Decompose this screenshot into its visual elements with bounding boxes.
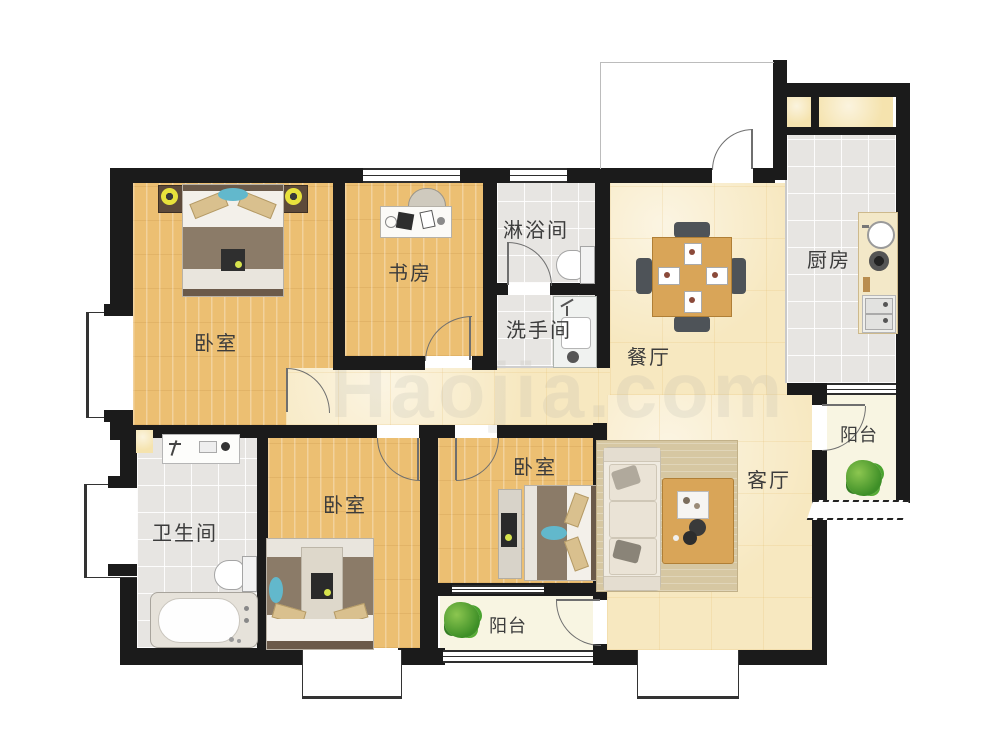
faucet-icon bbox=[862, 225, 869, 228]
floor-plan: Haojia.com bbox=[0, 0, 1000, 750]
mug-icon bbox=[385, 216, 397, 228]
wall-segment bbox=[472, 356, 497, 370]
bed-cushion bbox=[218, 188, 248, 201]
tray-cup bbox=[694, 503, 700, 509]
wall-segment bbox=[263, 425, 377, 438]
room-label-bedroom-2: 卧室 bbox=[323, 489, 367, 518]
entry-porch-line bbox=[600, 62, 601, 169]
window-study-top bbox=[363, 168, 460, 183]
kitchen-bay-ledge bbox=[787, 97, 811, 127]
deco-dot bbox=[673, 535, 679, 541]
bed-cushion bbox=[269, 577, 283, 603]
wall-segment bbox=[398, 648, 445, 665]
plate-dot bbox=[689, 297, 695, 303]
soap-icon bbox=[237, 639, 241, 643]
wall-segment bbox=[567, 168, 712, 183]
room-label-balcony-right: 阳台 bbox=[840, 421, 878, 447]
room-label-balcony-bottom: 阳台 bbox=[489, 612, 527, 638]
wall-segment bbox=[120, 568, 137, 665]
room-label-study: 书房 bbox=[388, 257, 432, 286]
plate-dot bbox=[712, 272, 718, 278]
wall-segment bbox=[753, 168, 775, 183]
book-icon bbox=[419, 210, 435, 229]
plate-dot bbox=[689, 249, 695, 255]
tap-icon bbox=[244, 606, 249, 611]
bed-tray-dot bbox=[235, 261, 242, 268]
bedroom-2-door-leaf bbox=[417, 438, 419, 480]
drain-dot bbox=[883, 318, 888, 323]
wall-segment bbox=[483, 183, 497, 370]
kitchen-bay-ledge bbox=[819, 97, 893, 127]
shower-door-leaf bbox=[507, 242, 509, 285]
wall-segment bbox=[896, 97, 910, 503]
room-label-washroom: 洗手间 bbox=[506, 314, 572, 343]
study-door-leaf bbox=[469, 316, 471, 360]
bed bbox=[182, 184, 284, 297]
bed-pillow bbox=[564, 536, 589, 571]
kettle-icon bbox=[683, 531, 697, 545]
plant-icon bbox=[444, 602, 480, 638]
wall-segment bbox=[812, 450, 827, 663]
room-label-kitchen: 厨房 bbox=[807, 244, 851, 273]
room-label-shower: 淋浴间 bbox=[503, 214, 569, 243]
burner-icon bbox=[869, 251, 889, 271]
open-area-dashed bbox=[807, 500, 909, 520]
drain-icon bbox=[567, 351, 579, 363]
bed-cushion bbox=[541, 526, 567, 540]
dining-chair bbox=[636, 258, 652, 294]
bathtub-basin bbox=[158, 598, 240, 643]
bed-tray bbox=[221, 249, 245, 271]
sofa-cushion bbox=[609, 501, 657, 538]
bed bbox=[524, 485, 600, 581]
lamp-icon bbox=[161, 188, 178, 205]
round-sink bbox=[867, 221, 895, 249]
wall-segment bbox=[110, 168, 133, 314]
tray-cup bbox=[683, 497, 690, 504]
bedroom-1-door-leaf bbox=[286, 368, 288, 412]
wall-segment bbox=[333, 356, 425, 370]
tv-dot bbox=[324, 589, 331, 596]
wall-segment bbox=[110, 168, 363, 183]
balcony-right-door-leaf bbox=[822, 404, 865, 406]
soap-dish bbox=[199, 441, 217, 453]
balcony-bottom-door-leaf bbox=[556, 599, 600, 601]
deco-icon bbox=[437, 217, 445, 225]
wall-segment bbox=[122, 648, 304, 665]
entry-door-arc bbox=[712, 129, 753, 170]
wall-segment bbox=[333, 183, 345, 356]
wall-segment bbox=[104, 304, 133, 316]
toilet-tank bbox=[580, 246, 595, 284]
room-label-bedroom-1: 卧室 bbox=[194, 327, 238, 356]
tv-dot bbox=[505, 534, 512, 541]
desk bbox=[380, 206, 452, 238]
kitchen-open-edge bbox=[785, 180, 787, 383]
wall-segment bbox=[420, 438, 438, 650]
wall-segment bbox=[811, 97, 819, 127]
bay-window-bedroom-1 bbox=[86, 312, 133, 418]
window-shower-top bbox=[510, 168, 567, 183]
wall-segment bbox=[104, 410, 133, 422]
wall-segment bbox=[108, 476, 137, 488]
wall-segment bbox=[787, 127, 896, 135]
room-label-dining: 餐厅 bbox=[627, 341, 671, 370]
entry-porch-line bbox=[600, 62, 774, 63]
window-balcony-bottom bbox=[443, 650, 595, 663]
drain-dot bbox=[883, 302, 888, 307]
bay-window-bedroom-2 bbox=[302, 650, 402, 699]
bed-bench bbox=[525, 486, 537, 580]
wall-segment bbox=[595, 168, 610, 368]
bedroom-3-door-leaf bbox=[455, 438, 457, 480]
basin bbox=[865, 314, 893, 330]
tap-icon bbox=[244, 618, 249, 623]
wall-segment bbox=[460, 168, 510, 183]
coffee-table bbox=[662, 478, 734, 564]
wall-segment bbox=[108, 564, 137, 576]
sofa-arm bbox=[604, 448, 660, 462]
room-label-bedroom-3: 卧室 bbox=[513, 451, 557, 480]
tv-icon bbox=[501, 513, 517, 547]
laptop-icon bbox=[396, 212, 415, 231]
drain-icon bbox=[221, 442, 230, 451]
plate-dot bbox=[664, 272, 670, 278]
plant-icon bbox=[846, 460, 882, 496]
bed-footboard bbox=[183, 289, 283, 296]
window-kitchen-balcony bbox=[827, 383, 896, 395]
bathroom-corner-ledge bbox=[136, 430, 153, 453]
basin bbox=[865, 298, 893, 314]
wall-segment bbox=[773, 83, 910, 97]
entry-door-leaf bbox=[751, 129, 753, 169]
bathroom-vanity bbox=[162, 434, 240, 464]
room-label-bathroom: 卫生间 bbox=[152, 517, 218, 546]
bay-window-living bbox=[637, 650, 739, 699]
lamp-icon bbox=[285, 188, 302, 205]
bed-pillow-row bbox=[267, 619, 373, 641]
wall-segment bbox=[419, 425, 455, 438]
bed-pillow bbox=[564, 492, 589, 527]
wall-segment bbox=[773, 60, 787, 180]
bed-bench bbox=[183, 269, 283, 289]
wall-segment bbox=[550, 283, 597, 295]
sofa bbox=[603, 447, 661, 591]
soap-icon bbox=[229, 637, 234, 642]
tray bbox=[677, 491, 709, 519]
dining-chair bbox=[674, 316, 710, 332]
bed bbox=[266, 538, 374, 650]
kitchen-counter bbox=[858, 212, 898, 334]
wall-segment bbox=[593, 650, 637, 665]
window-bedroom-3-balcony bbox=[452, 585, 544, 594]
bathtub bbox=[150, 592, 258, 648]
dining-table bbox=[652, 237, 732, 317]
control-panel bbox=[863, 277, 870, 292]
wall-segment bbox=[737, 650, 827, 665]
room-label-living: 客厅 bbox=[747, 464, 791, 493]
toilet-tank bbox=[242, 556, 257, 592]
faucet-icon bbox=[169, 443, 181, 445]
sofa-arm bbox=[604, 576, 660, 590]
dining-chair bbox=[730, 258, 746, 294]
dining-chair bbox=[674, 222, 710, 238]
toilet-icon bbox=[214, 560, 244, 590]
wall-segment bbox=[497, 425, 593, 438]
bed-headboard bbox=[267, 641, 373, 649]
